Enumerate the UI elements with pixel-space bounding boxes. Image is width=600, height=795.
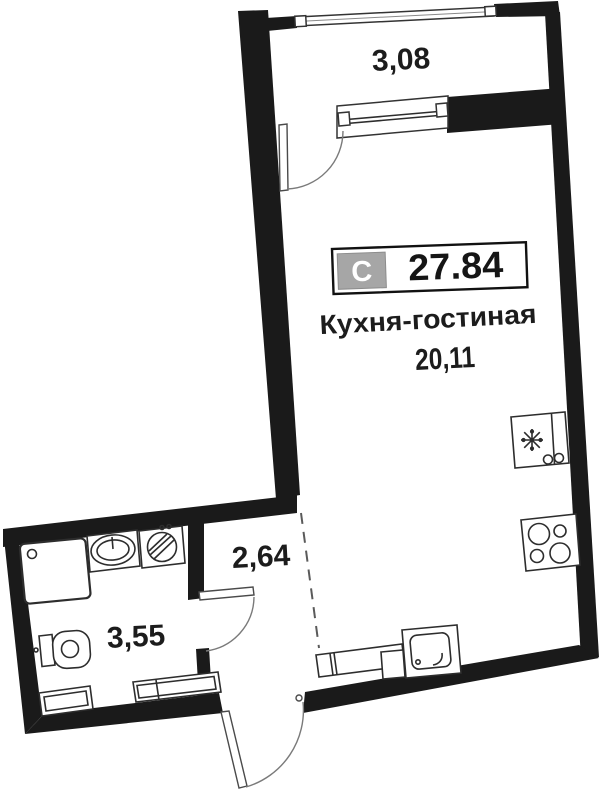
washbasin [87,530,140,572]
stove [521,514,580,571]
balcony-window [337,96,448,138]
window-frame [337,96,448,138]
toilet [34,630,91,669]
washing-machine [139,525,185,569]
glazing-end-frame-left [295,16,307,27]
bathroom-door-leaf [199,587,254,600]
kitchen-living-room-area-label: 20,11 [414,341,476,377]
kitchen-sink [381,625,461,679]
bathroom-door-arc [206,597,254,651]
balcony-area-label: 3,08 [371,42,431,78]
refrigerator [511,412,569,468]
basin-faucet-icon [112,537,113,549]
entrance-door-arc [246,702,303,787]
shower-tray [19,538,90,604]
snowflake-icon [521,429,543,451]
hallway-area-label: 2,64 [231,539,291,575]
balcony-door-arc [287,131,343,189]
entrance-door [221,695,303,788]
floor-plan: 3,08 Кухня-гостиная 20,11 2,64 3,55 С 27… [0,0,600,795]
unit-badge: С 27.84 [332,242,527,294]
balcony-door-leaf [279,124,288,191]
entrance-door-leaf [221,711,247,788]
bathroom-right-wall-upper [188,519,204,600]
balcony-door [279,124,343,191]
left-wall [238,10,300,499]
walls [3,1,599,734]
glazing-wall-stub [266,16,297,31]
bathroom-area-label: 3,55 [106,619,166,655]
bathroom-door [199,587,254,651]
unit-category-letter: С [351,256,373,289]
window-end-right [436,103,448,117]
kitchen-living-room-name: Кухня-гостиная [319,299,537,340]
window-end-left [338,112,350,126]
glazing-end-frame-right [485,6,496,16]
entrance-door-pivot [296,695,302,701]
floor-plan-page: 3,08 Кухня-гостиная 20,11 2,64 3,55 С 27… [0,0,600,795]
unit-total-area: 27.84 [407,244,504,288]
zone-boundary-dashed-line [301,513,319,648]
balcony-partition-wall [447,88,561,133]
balcony-glazing [295,6,497,27]
